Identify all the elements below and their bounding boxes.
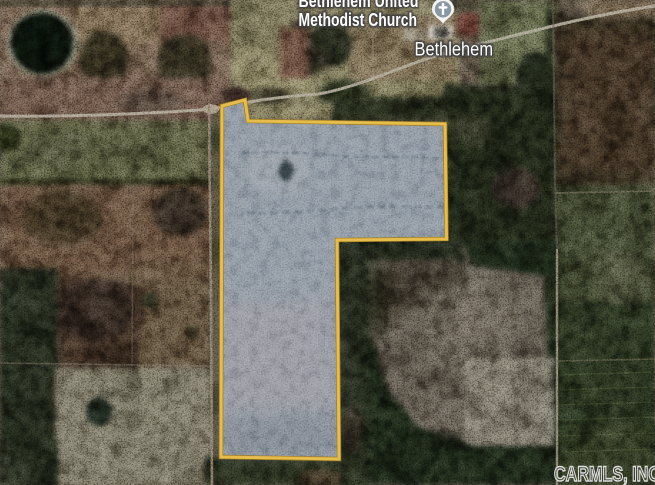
- svg-text:Bethlehem: Bethlehem: [415, 38, 494, 60]
- svg-text:CARMLS, INC: CARMLS, INC: [554, 462, 655, 485]
- svg-text:Methodist Church: Methodist Church: [299, 10, 418, 30]
